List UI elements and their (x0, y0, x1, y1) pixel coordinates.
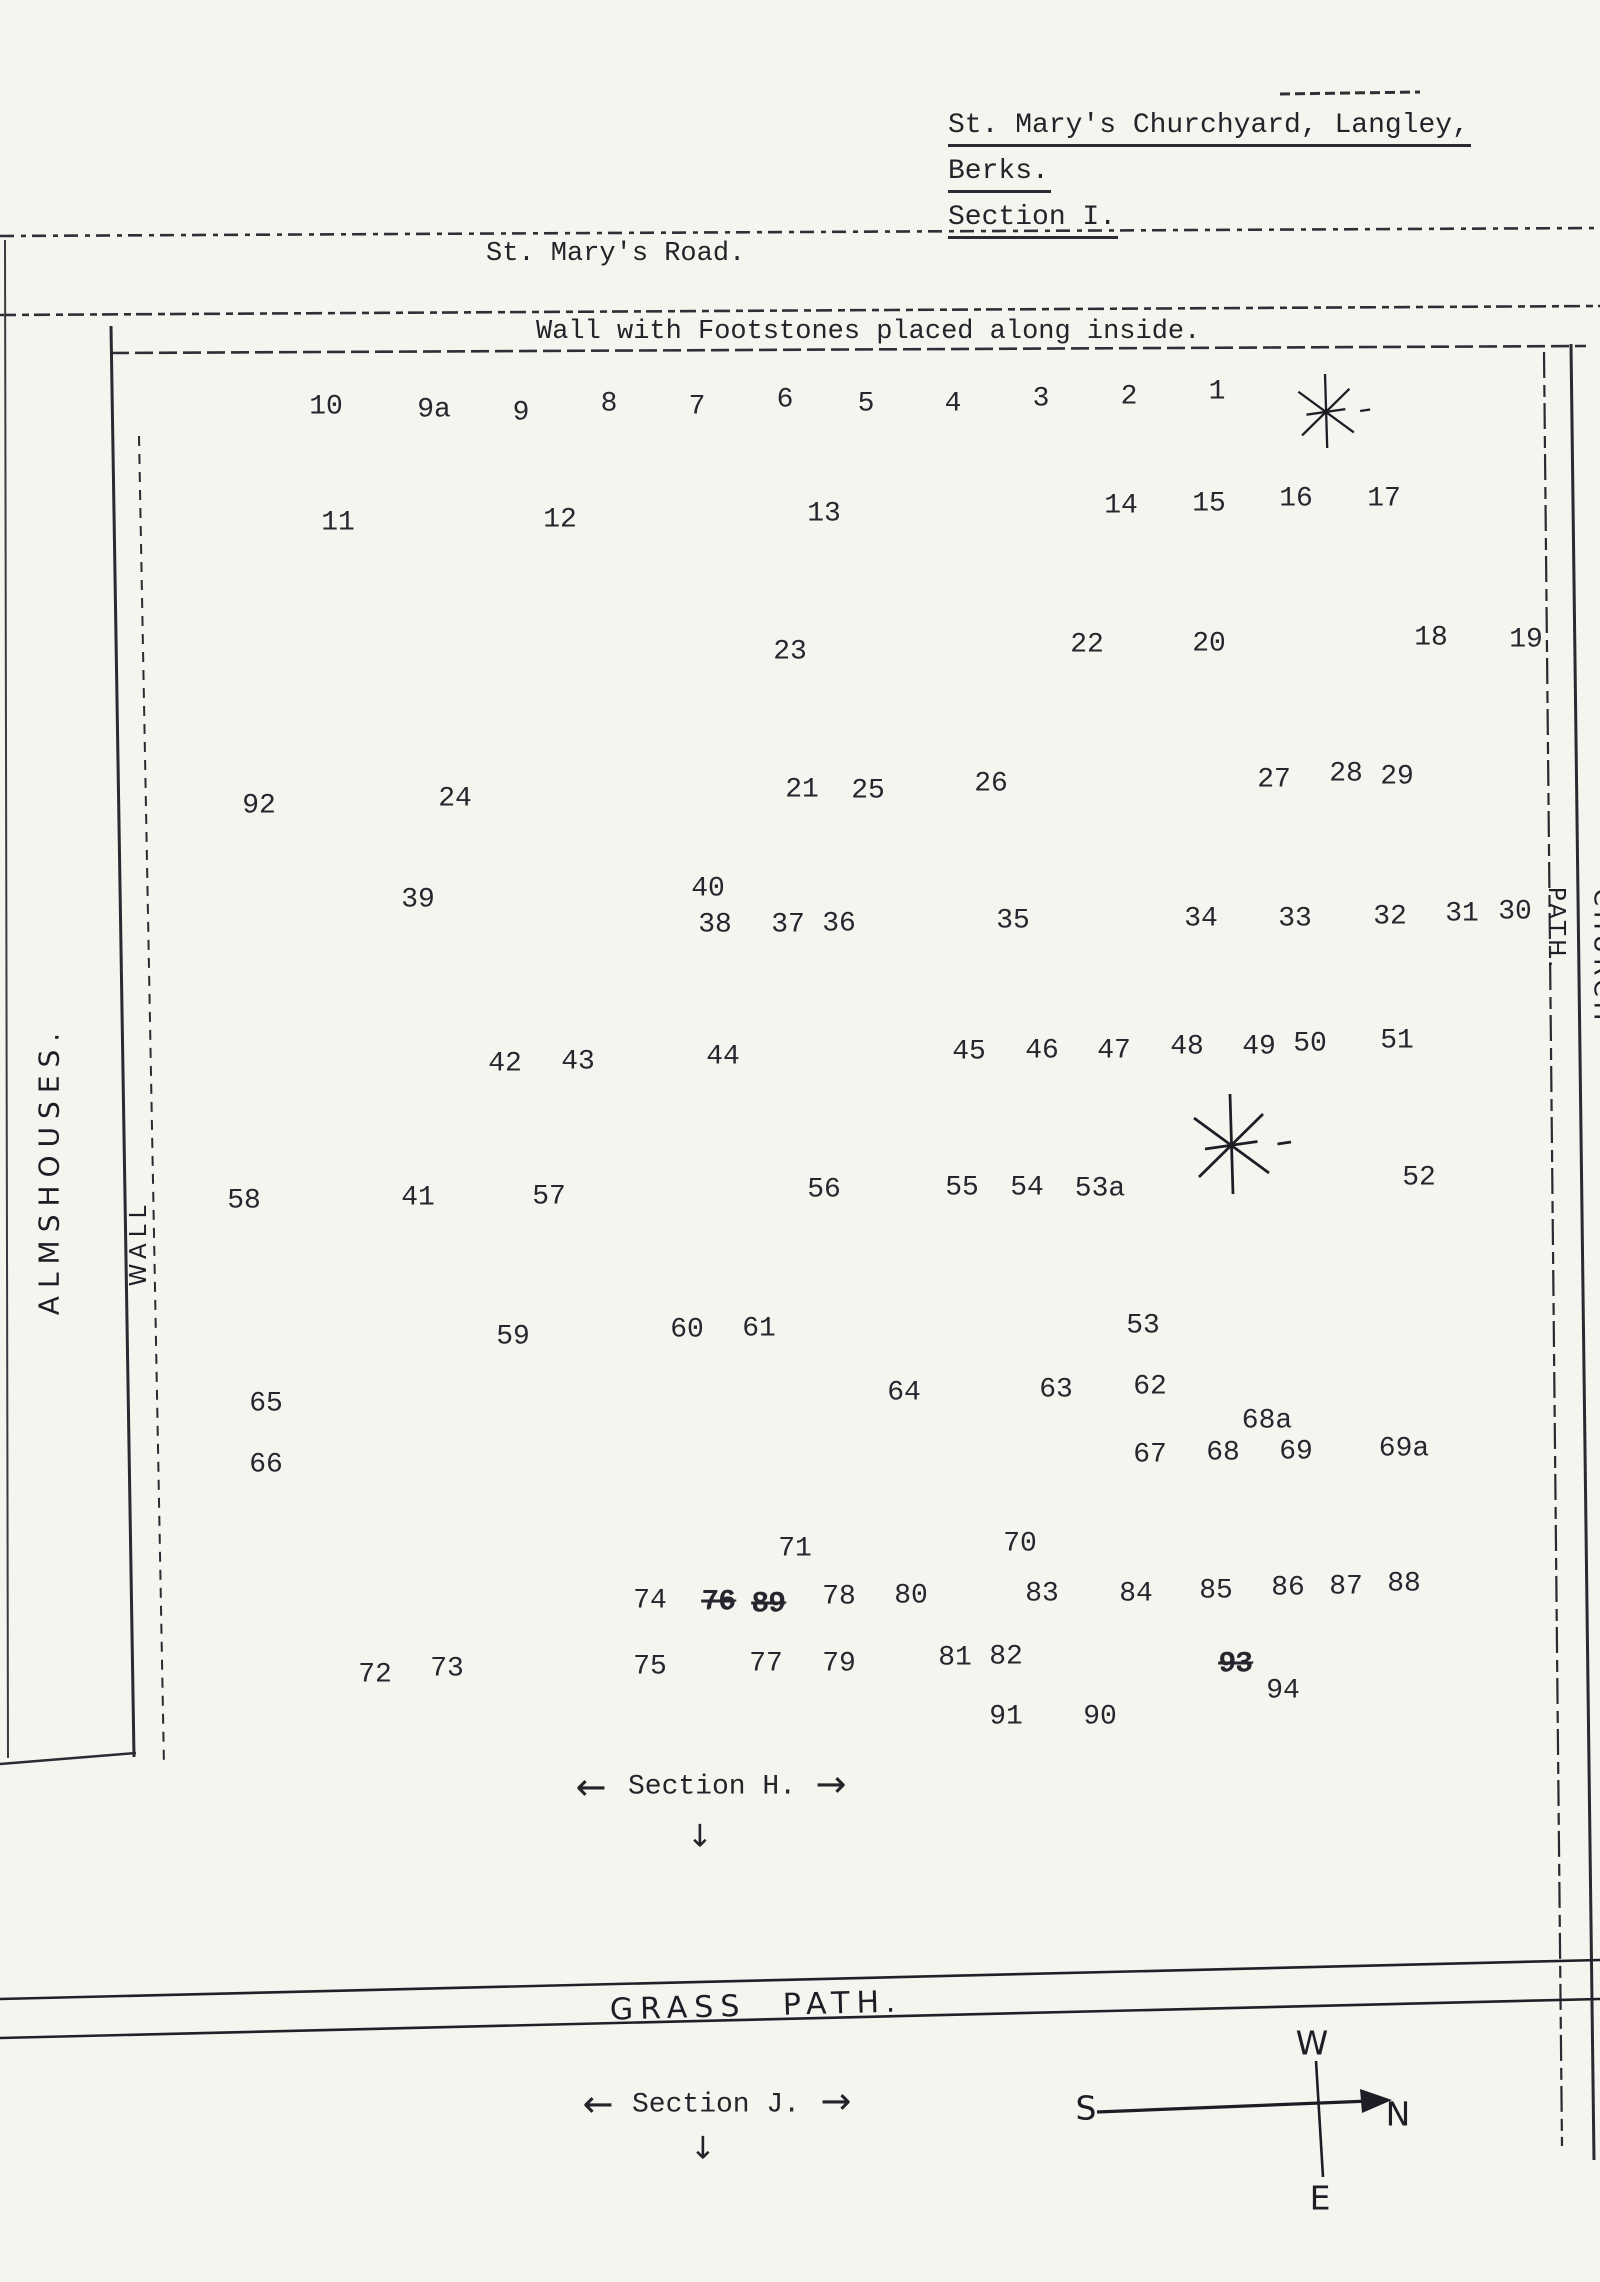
plot-number-87: 87 (1329, 1572, 1363, 1603)
plot-number-36: 36 (822, 909, 856, 940)
plot-number-6: 6 (777, 385, 794, 416)
almshouses-label: ALMSHOUSES. (33, 1025, 66, 1315)
plot-number-8: 8 (601, 389, 618, 420)
plot-number-56: 56 (807, 1175, 841, 1206)
title-line-1: St. Mary's Churchyard, Langley, (948, 110, 1471, 147)
plot-number-14: 14 (1104, 491, 1138, 522)
arrow-left-icon: ← (575, 1769, 606, 1806)
compass-horizontal-line (1097, 2101, 1370, 2112)
plot-number-39: 39 (401, 885, 435, 916)
plot-number-90: 90 (1083, 1702, 1117, 1733)
plot-number-28: 28 (1329, 759, 1363, 790)
plot-number-34: 34 (1184, 904, 1218, 935)
plot-number-68a: 68a (1242, 1406, 1292, 1437)
left-edge-line (5, 240, 8, 1758)
plot-number-9a: 9a (417, 395, 451, 426)
plot-number-80: 80 (894, 1581, 928, 1612)
plot-number-19: 19 (1509, 625, 1543, 656)
plot-number-62: 62 (1133, 1372, 1167, 1403)
plot-number-22: 22 (1070, 630, 1104, 661)
wall-top-line (111, 346, 1586, 353)
plot-number-1: 1 (1209, 377, 1226, 408)
wall-footstones-label: Wall with Footstones placed along inside… (536, 317, 1200, 347)
arrow-down-icon: ↓ (687, 1822, 713, 1853)
plot-number-18: 18 (1414, 623, 1448, 654)
plot-number-79: 79 (822, 1649, 856, 1680)
plot-number-50: 50 (1293, 1029, 1327, 1060)
right-path-outer-line (1571, 344, 1594, 2160)
compass-letter-S: S (1076, 2089, 1097, 2128)
left-wall-inner-line (139, 436, 164, 1767)
plot-number-49: 49 (1242, 1032, 1276, 1063)
plot-number-44: 44 (706, 1042, 740, 1073)
plot-number-23: 23 (773, 637, 807, 668)
plot-number-43: 43 (561, 1047, 595, 1078)
title-line-3: Section I. (948, 202, 1118, 239)
plot-number-26: 26 (974, 769, 1008, 800)
plot-number-9: 9 (513, 398, 530, 429)
plot-number-41: 41 (401, 1183, 435, 1214)
church-label: CHURCH (1589, 889, 1600, 1026)
plot-number-20: 20 (1192, 629, 1226, 660)
plot-number-2: 2 (1121, 382, 1138, 413)
plot-number-67: 67 (1133, 1440, 1167, 1471)
plot-number-83: 83 (1025, 1579, 1059, 1610)
plot-number-84: 84 (1119, 1579, 1153, 1610)
plot-number-55: 55 (945, 1173, 979, 1204)
plot-number-29: 29 (1380, 762, 1414, 793)
plot-number-52: 52 (1402, 1163, 1436, 1194)
title-block: St. Mary's Churchyard, Langley, Berks. S… (948, 110, 1471, 248)
plot-number-21: 21 (785, 775, 819, 806)
plot-number-76: 76 (701, 1587, 735, 1618)
plot-number-48: 48 (1170, 1032, 1204, 1063)
plot-number-94: 94 (1266, 1676, 1300, 1707)
arrow-down-icon: ↓ (690, 2134, 716, 2165)
plot-number-51: 51 (1380, 1026, 1414, 1057)
compass-letter-W: W (1296, 2024, 1329, 2063)
plot-number-27: 27 (1257, 765, 1291, 796)
plot-number-63: 63 (1039, 1375, 1073, 1406)
wall-label: WALL (126, 1200, 152, 1287)
plot-number-5: 5 (858, 389, 875, 420)
path-label: PATH. (1543, 887, 1569, 972)
plot-number-38: 38 (698, 910, 732, 941)
plot-number-85: 85 (1199, 1576, 1233, 1607)
plot-number-77: 77 (749, 1649, 783, 1680)
plot-number-65: 65 (249, 1389, 283, 1420)
plot-number-88: 88 (1387, 1569, 1421, 1600)
plot-number-25: 25 (851, 776, 885, 807)
plot-number-24: 24 (438, 784, 472, 815)
stray-mark (1280, 92, 1420, 94)
plot-number-78: 78 (822, 1582, 856, 1613)
arrow-right-icon: → (820, 2083, 851, 2120)
plot-number-58: 58 (227, 1186, 261, 1217)
plot-number-37: 37 (771, 910, 805, 941)
section-label: Section H. (628, 1772, 796, 1803)
plot-number-47: 47 (1097, 1036, 1131, 1067)
section-label: Section J. (632, 2090, 800, 2121)
plot-number-93: 93 (1218, 1649, 1252, 1680)
plot-number-71: 71 (778, 1534, 812, 1565)
arrow-left-icon: ← (582, 2086, 613, 2123)
plot-number-91: 91 (989, 1702, 1023, 1733)
plot-number-89: 89 (751, 1589, 785, 1620)
plot-number-73: 73 (430, 1654, 464, 1685)
plot-number-60: 60 (670, 1315, 704, 1346)
arrow-right-icon: → (815, 1766, 846, 1803)
plot-number-64: 64 (887, 1378, 921, 1409)
plot-number-7: 7 (689, 392, 706, 423)
plot-number-92: 92 (242, 791, 276, 822)
compass-vertical-line (1316, 2061, 1323, 2177)
plot-number-4: 4 (945, 389, 962, 420)
plot-number-72: 72 (358, 1660, 392, 1691)
plot-number-46: 46 (1025, 1036, 1059, 1067)
plot-number-42: 42 (488, 1049, 522, 1080)
plot-number-53: 53 (1126, 1311, 1160, 1342)
tree-marker (1194, 1094, 1291, 1194)
left-wall-outer-line (111, 326, 134, 1757)
almshouses-bottom-line (0, 1753, 136, 1764)
plot-number-31: 31 (1445, 899, 1479, 930)
plot-number-45: 45 (952, 1037, 986, 1068)
plot-number-3: 3 (1033, 384, 1050, 415)
road-label: St. Mary's Road. (486, 239, 745, 269)
plot-number-82: 82 (989, 1642, 1023, 1673)
plot-number-16: 16 (1279, 484, 1313, 515)
plot-number-33: 33 (1278, 904, 1312, 935)
plot-number-17: 17 (1367, 484, 1401, 515)
plot-number-75: 75 (633, 1652, 667, 1683)
plot-number-10: 10 (309, 392, 343, 423)
plot-number-66: 66 (249, 1450, 283, 1481)
right-path-inner-line (1544, 352, 1562, 2146)
plot-number-35: 35 (996, 906, 1030, 937)
plot-number-53a: 53a (1075, 1174, 1125, 1205)
plot-number-11: 11 (321, 508, 355, 539)
plot-number-57: 57 (532, 1182, 566, 1213)
plot-number-70: 70 (1003, 1529, 1037, 1560)
compass-letter-N: N (1386, 2095, 1411, 2134)
compass-letter-E: E (1310, 2179, 1331, 2218)
plot-number-13: 13 (807, 499, 841, 530)
plot-number-81: 81 (938, 1643, 972, 1674)
plot-number-40: 40 (691, 874, 725, 905)
plot-number-68: 68 (1206, 1438, 1240, 1469)
plot-number-86: 86 (1271, 1573, 1305, 1604)
plot-number-12: 12 (543, 505, 577, 536)
road-lower-line (0, 306, 1600, 315)
plot-number-32: 32 (1373, 902, 1407, 933)
plot-number-69: 69 (1279, 1437, 1313, 1468)
plot-number-69a: 69a (1379, 1434, 1429, 1465)
plot-number-74: 74 (633, 1586, 667, 1617)
tree-marker (1298, 374, 1370, 448)
plot-number-30: 30 (1498, 897, 1532, 928)
plot-number-59: 59 (496, 1322, 530, 1353)
churchyard-plan-page: St. Mary's Churchyard, Langley, Berks. S… (0, 0, 1600, 2282)
title-line-2: Berks. (948, 156, 1051, 193)
plot-number-61: 61 (742, 1314, 776, 1345)
plot-number-54: 54 (1010, 1173, 1044, 1204)
plot-number-15: 15 (1192, 489, 1226, 520)
